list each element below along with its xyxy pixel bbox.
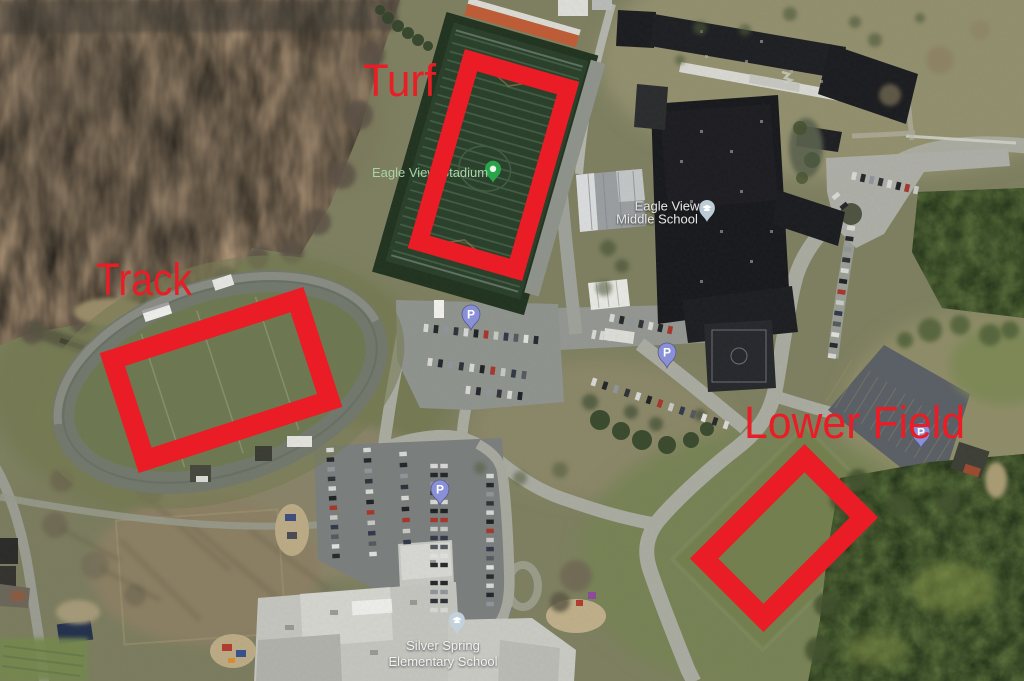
svg-text:Elementary School: Elementary School <box>388 654 497 669</box>
svg-text:P: P <box>436 483 444 497</box>
svg-text:Track: Track <box>96 254 192 305</box>
svg-text:Lower Field: Lower Field <box>744 397 965 448</box>
svg-text:Turf: Turf <box>363 55 436 106</box>
svg-text:P: P <box>467 308 475 322</box>
svg-text:Middle School: Middle School <box>616 212 698 227</box>
svg-text:Silver Spring: Silver Spring <box>406 638 480 653</box>
svg-text:P: P <box>663 346 671 360</box>
